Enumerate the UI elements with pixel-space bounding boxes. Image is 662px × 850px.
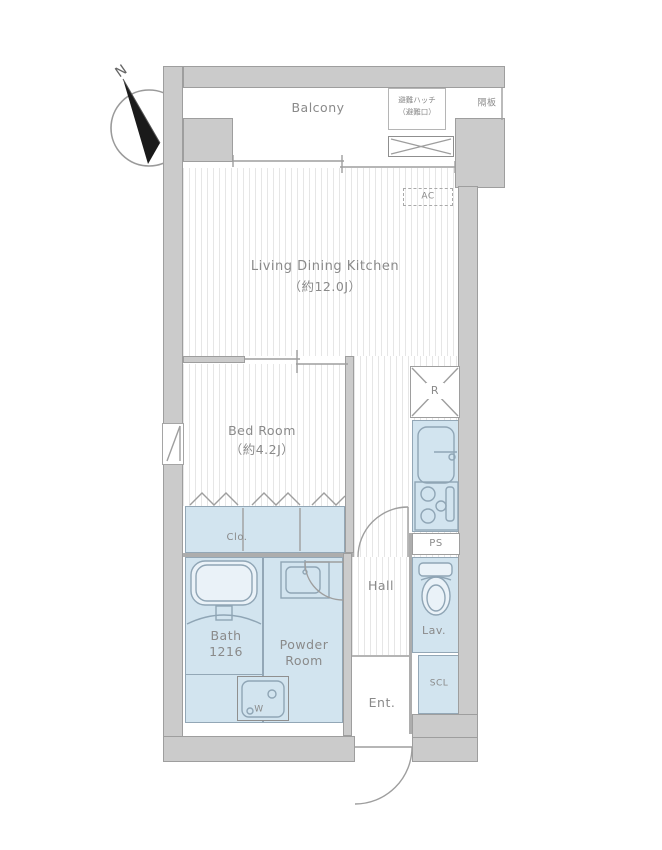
- evac-hatch-symbol-box: [388, 136, 454, 157]
- wall-balcony-step: [183, 118, 233, 162]
- pipe-space-label: PS: [429, 538, 442, 551]
- wall-top: [183, 66, 505, 88]
- wall-bottom-left: [163, 736, 355, 762]
- powder-room-label-line2: Room: [285, 653, 323, 669]
- washer-label: W: [254, 704, 263, 715]
- wall-powder-hall: [343, 553, 352, 736]
- ac-label: AC: [421, 191, 434, 202]
- compass-north-label: N: [112, 62, 131, 83]
- closet-room: [185, 506, 345, 553]
- ldk-size-label: （約12.0J）: [288, 279, 361, 295]
- wall-left: [163, 66, 183, 762]
- hall-label: Hall: [368, 578, 394, 594]
- wall-bottom-right: [412, 736, 478, 762]
- bath-size-label: 1216: [209, 644, 243, 660]
- balcony-partition-label: 隔板: [477, 98, 496, 109]
- closet-label: Clo.: [227, 532, 248, 545]
- evac-hatch-label-line2: （避難口）: [398, 107, 436, 116]
- north-needle-icon: [123, 79, 160, 164]
- wall-bedroom-right: [345, 356, 354, 553]
- bath-name-label: Bath: [210, 628, 241, 644]
- bedroom-name-label: Bed Room: [228, 423, 296, 439]
- bedroom-size-label: （約4.2J）: [230, 442, 295, 458]
- wall-right: [458, 186, 478, 762]
- bedroom-window: [162, 423, 184, 465]
- lavatory-label: Lav.: [422, 624, 446, 638]
- entrance-door-opening: [355, 734, 412, 764]
- wall-below-scl: [412, 714, 478, 738]
- refrigerator-label: R: [431, 384, 439, 398]
- wall-closet-bath-divider: [183, 553, 354, 557]
- balcony-label: Balcony: [291, 100, 344, 116]
- hall-floor: [352, 557, 412, 655]
- wall-bedroom-top: [183, 356, 245, 363]
- wall-hall-right: [409, 533, 412, 736]
- powder-room-label-line1: Powder: [280, 637, 329, 653]
- lavatory-room: [412, 557, 460, 653]
- kitchen-counter: [412, 420, 460, 532]
- evac-hatch-label-line1: 避難ハッチ: [398, 95, 436, 104]
- ldk-name-label: Living Dining Kitchen: [251, 259, 399, 275]
- entrance-label: Ent.: [369, 695, 396, 711]
- floor-plan: N: [0, 0, 662, 850]
- shoe-closet-label: SCL: [430, 678, 449, 689]
- wall-balcony-right: [455, 118, 505, 188]
